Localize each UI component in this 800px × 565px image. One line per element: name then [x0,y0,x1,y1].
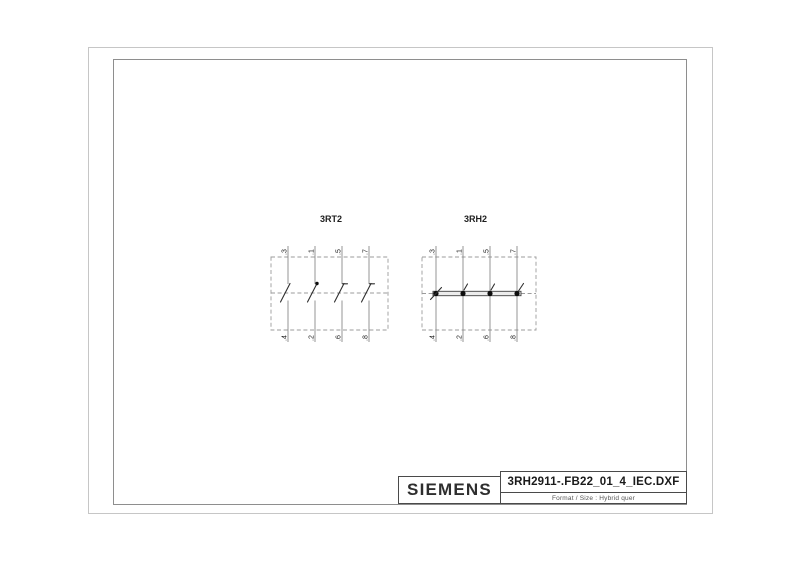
terminal-label: .7 [363,249,370,255]
filename-box: 3RH2911-.FB22_01_4_IEC.DXF Format / Size… [500,471,687,504]
module-outline [271,257,388,330]
terminal-label: .8 [363,335,370,341]
siemens-logo: SIEMENS [407,480,492,500]
terminal-label: .1 [457,249,464,255]
drawing-filename: 3RH2911-.FB22_01_4_IEC.DXF [501,472,686,493]
terminal-labels: .3 .1 .5 .7 .4 .2 .6 .8 [282,249,370,341]
terminal-label: .1 [309,249,316,255]
drawing-sheet: 3RT2 .3 .1 .5 .7 .4 [0,0,800,565]
terminal-label: .3 [430,249,437,255]
format-info: Format / Size : Hybrid quer [501,493,686,503]
terminal-label: .3 [282,249,289,255]
siemens-logo-box: SIEMENS [398,476,501,504]
schematic-3rt2: 3RT2 .3 .1 .5 .7 .4 [255,205,405,350]
terminal-label: .4 [430,335,437,341]
terminal-label: .5 [336,249,343,255]
terminal-label: .7 [511,249,518,255]
schematic-3rh2: 3RH2 .3 .1 .5 .7 .4 [410,205,560,350]
contact-symbols [281,282,375,302]
terminal-label: .8 [511,335,518,341]
terminal-label: .2 [309,335,316,341]
terminal-label: .4 [282,335,289,341]
terminal-label: .5 [484,249,491,255]
diagram-label: 3RH2 [464,214,487,224]
contact-bridge-bar [433,291,521,295]
terminal-lines [288,246,369,342]
terminal-label: .6 [484,335,491,341]
terminal-label: .2 [457,335,464,341]
terminal-label: .6 [336,335,343,341]
diagram-label: 3RT2 [320,214,342,224]
